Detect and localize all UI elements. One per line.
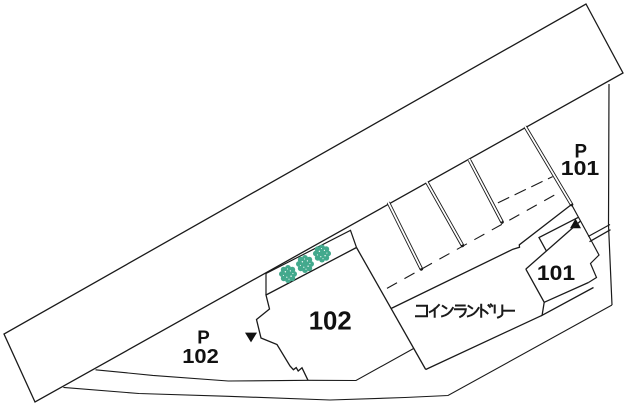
svg-text:102: 102 <box>182 345 219 368</box>
svg-text:101: 101 <box>561 157 600 180</box>
svg-text:101: 101 <box>537 261 575 285</box>
svg-text:102: 102 <box>309 306 352 336</box>
